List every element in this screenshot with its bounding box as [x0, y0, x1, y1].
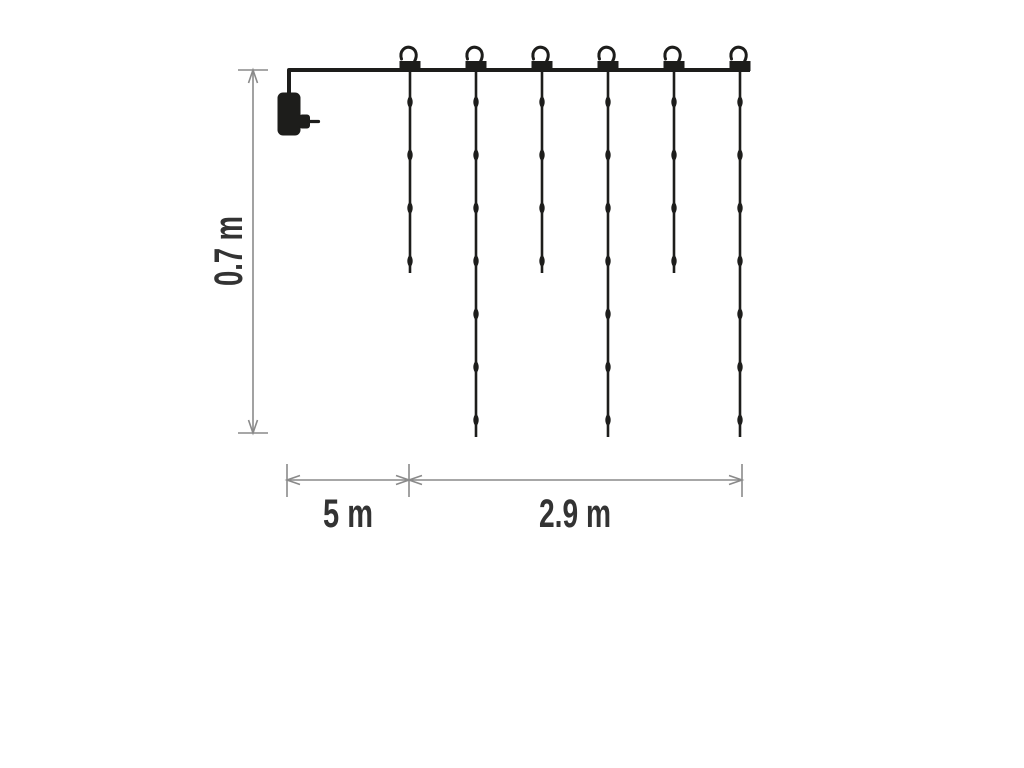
led-bulb — [539, 149, 544, 162]
led-bulb — [737, 308, 742, 321]
led-bulb — [671, 202, 676, 215]
led-bulb — [737, 255, 742, 268]
led-bulb — [605, 308, 610, 321]
led-bulb — [407, 149, 412, 162]
power-plug-icon — [278, 93, 319, 136]
plug-body — [278, 93, 301, 136]
led-bulb — [737, 202, 742, 215]
led-bulb — [671, 149, 676, 162]
led-bulb — [473, 96, 478, 109]
led-bulb — [605, 202, 610, 215]
led-bulb — [737, 361, 742, 374]
light-strand — [400, 47, 421, 273]
led-bulb — [737, 149, 742, 162]
light-strand — [466, 47, 487, 437]
led-bulb — [605, 361, 610, 374]
lead-length-label: 5 m — [323, 492, 373, 536]
hook-icon — [533, 47, 548, 61]
led-bulb — [671, 96, 676, 109]
led-bulb — [407, 96, 412, 109]
led-bulb — [605, 149, 610, 162]
led-bulb — [473, 149, 478, 162]
dimension-lines — [238, 70, 742, 497]
main-wire — [289, 70, 750, 93]
led-bulb — [671, 255, 676, 268]
hook-clip — [466, 61, 487, 71]
hook-clip — [730, 61, 751, 71]
led-bulb — [473, 361, 478, 374]
led-bulb — [407, 255, 412, 268]
light-strand — [664, 47, 685, 273]
hook-clip — [532, 61, 553, 71]
hook-clip — [598, 61, 619, 71]
hook-icon — [467, 47, 482, 61]
led-bulb — [473, 414, 478, 427]
led-bulb — [539, 255, 544, 268]
light-curtain-diagram: 0.7 m 5 m 2.9 m — [0, 0, 1024, 768]
led-bulb — [407, 202, 412, 215]
led-bulb — [605, 96, 610, 109]
hook-icon — [401, 47, 416, 61]
led-bulb — [473, 255, 478, 268]
hook-icon — [731, 47, 746, 61]
diagram-canvas: 0.7 m 5 m 2.9 m — [0, 0, 1024, 768]
hook-clip — [400, 61, 421, 71]
hook-icon — [665, 47, 680, 61]
led-bulb — [605, 414, 610, 427]
supply-wire — [289, 70, 750, 93]
hook-clip — [664, 61, 685, 71]
curtain-width-label: 2.9 m — [539, 492, 611, 536]
light-strand — [730, 47, 751, 437]
led-bulb — [737, 414, 742, 427]
hook-icon — [599, 47, 614, 61]
led-bulb — [473, 308, 478, 321]
led-bulb — [539, 96, 544, 109]
led-bulb — [737, 96, 742, 109]
light-strand — [598, 47, 619, 437]
height-dimension-label: 0.7 m — [207, 216, 251, 286]
led-bulb — [473, 202, 478, 215]
led-bulb — [539, 202, 544, 215]
led-bulb — [605, 255, 610, 268]
light-strand — [532, 47, 553, 273]
light-strands — [400, 47, 751, 437]
